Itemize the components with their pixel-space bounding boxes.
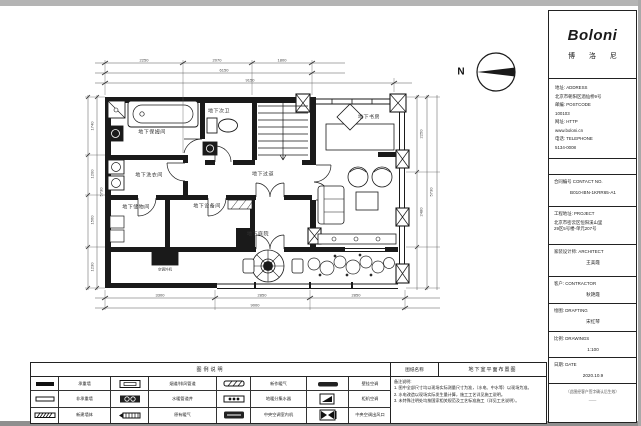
room-label-study: 地下书房	[358, 114, 380, 121]
drawing-name-value: 地下室平面布置图	[439, 363, 546, 376]
legend-header: 图例说明	[31, 363, 390, 377]
stamp-area: （此图经客户签字确认后生效） ——	[549, 384, 636, 422]
dim-right-1: 2250	[419, 130, 424, 139]
date: 日期: DATE 2020.10.9	[549, 358, 636, 384]
bottom-strip: 图例说明 承重墙 烟道/排风管道 新作暖气 壁挂空调 非承重墙	[30, 362, 547, 424]
dim-bottom-1: 3300	[156, 293, 165, 298]
room-label-bath: 地下保姆间	[138, 129, 166, 136]
fixtures	[108, 101, 252, 265]
legend-table: 图例说明 承重墙 烟道/排风管道 新作暖气 壁挂空调 非承重墙	[31, 363, 391, 423]
flue-duct-icon	[111, 377, 149, 391]
legend-label: 新建墙体	[59, 408, 111, 423]
drafting: 绘图: DRAFTING 宋红琴	[549, 304, 636, 332]
architect: 家装设计师: ARCHITECT 王美霞	[549, 245, 636, 277]
address-line: 5134-0008	[555, 144, 631, 153]
dim-top-3: 1800	[278, 58, 287, 63]
dim-top-mid: 6150	[220, 68, 229, 73]
company-logo: Boloni 博 洛 尼	[549, 11, 636, 79]
equipment-box	[228, 200, 252, 209]
title-block: Boloni 博 洛 尼 地址: ADDRESS 北京市朝阳区酒仙桥9号 邮编:…	[548, 10, 637, 423]
address-line: 网址: HTTP	[555, 118, 631, 127]
toilet	[207, 118, 238, 133]
tv-cabinet	[318, 234, 396, 244]
dim-right-total: 5730	[429, 188, 434, 197]
dim-left-1: 1740	[90, 122, 95, 131]
legend-label: 中央空调室内机	[251, 408, 307, 423]
central-ac-outlet-icon	[307, 408, 349, 423]
coffee-table	[356, 192, 378, 210]
load-bearing-wall-icon	[31, 377, 59, 391]
room-label-laundry: 地下洗衣间	[135, 172, 163, 179]
cabinet-ac-icon	[307, 391, 349, 407]
north-arrow-icon	[477, 53, 515, 91]
project-address: 工程地址: PROJECT 北京市密云区恒阳溪山里 29区5号楼-单元207号	[549, 207, 636, 245]
ac-outdoor-unit	[152, 252, 178, 265]
legend-label: 新作暖气	[251, 377, 307, 391]
dim-bottom-total: 9000	[251, 303, 260, 308]
note-item: 3. 未特殊注明处均按国家相关规范及工艺标准施工（详见工艺说明）。	[394, 398, 543, 404]
drawing-name-row: 图纸名称 地下室平面布置图	[391, 363, 546, 377]
address-line: 地址: ADDRESS	[555, 84, 631, 93]
room-label-courtyard: 地下庭院	[247, 231, 269, 238]
patio-chair	[292, 259, 303, 273]
contractor: 客户: CONTRACTOR 秋艳霞	[549, 277, 636, 304]
armchairs	[348, 167, 392, 187]
dim-bottom-2: 2850	[258, 293, 267, 298]
dim-top-2: 2070	[213, 58, 222, 63]
room-label-equipment: 地下设备间	[193, 203, 221, 210]
patio-umbrella	[252, 250, 284, 282]
existing-radiator-icon	[111, 408, 149, 423]
legend-label: 非承重墙	[59, 391, 111, 407]
legend-label: 水暖管道井	[149, 391, 217, 407]
legend-label: 原有暖气	[149, 408, 217, 423]
notes: 备注说明: 1. 图中全部尺寸均以现场实际测量尺寸为准，（水电、中水等）以现场为…	[391, 377, 546, 406]
planting-bed	[308, 254, 395, 276]
dim-left-4: 1230	[90, 263, 95, 272]
patio-chair	[243, 259, 254, 273]
address-line: www.boloni.cn	[555, 127, 631, 136]
furniture	[318, 104, 396, 244]
wall-ac-icon	[307, 377, 349, 391]
courtyard-items	[243, 250, 395, 282]
washbasin	[108, 126, 123, 141]
legend-label: 壁挂空调	[349, 377, 391, 391]
legend-label: 承重墙	[59, 377, 111, 391]
logo-chinese: 博 洛 尼	[549, 51, 636, 61]
pipe-shaft-icon	[111, 391, 149, 407]
legend-label: 地暖分集水器	[251, 391, 307, 407]
central-ac-indoor-unit-icon	[217, 408, 251, 423]
dim-left-total: 5730	[99, 188, 104, 197]
room-label-wc: 地下次卫	[208, 108, 230, 115]
wc-basin	[203, 142, 217, 155]
title-block-spacer	[549, 159, 636, 175]
legend-label: 中央空调出风口	[349, 408, 391, 423]
room-label-corridor: 地下过道	[252, 171, 274, 178]
company-address: 地址: ADDRESS 北京市朝阳区酒仙桥9号 邮编: POSTCODE 100…	[549, 79, 636, 159]
drawing-name-and-notes: 图纸名称 地下室平面布置图 备注说明: 1. 图中全部尺寸均以现场实际测量尺寸为…	[391, 363, 546, 423]
dim-top-1: 2250	[140, 58, 149, 63]
note-item: 1. 图中全部尺寸均以现场实际测量尺寸为准，（水电、中水等）以现场为准。	[394, 385, 543, 391]
address-line: 电话: TELEPHONE	[555, 135, 631, 144]
logo-text: Boloni	[549, 27, 636, 44]
floor-heating-manifold-icon	[217, 391, 251, 407]
legend-label: 烟道/排风管道	[149, 377, 217, 391]
dim-top-total: 9150	[246, 78, 255, 83]
non-bearing-wall-icon	[31, 391, 59, 407]
label-ac-outdoor: 空调外机	[158, 268, 172, 273]
bathtub	[128, 101, 198, 127]
study-desk	[326, 104, 394, 150]
dim-left-3: 1560	[90, 216, 95, 225]
legend-row: 新建墙体 原有暖气 中央空调室内机 中央空调出风口	[31, 408, 390, 423]
new-radiator-icon	[217, 377, 251, 391]
address-line: 北京市朝阳区酒仙桥9号	[555, 93, 631, 102]
sofa	[318, 186, 344, 224]
legend-row: 承重墙 烟道/排风管道 新作暖气 壁挂空调	[31, 377, 390, 391]
dim-left-2: 1200	[90, 170, 95, 179]
legend-label: 柜机空调	[349, 391, 391, 407]
new-built-wall-icon	[31, 408, 59, 423]
contract-number: 合同编号 CONTACT NO. B010-IBN-1KRR65-A1	[549, 175, 636, 207]
room-label-storage: 地下储物间	[122, 204, 150, 211]
north-letter: N	[457, 67, 464, 78]
legend-row: 非承重墙 水暖管道井 地暖分集水器 柜机空调	[31, 391, 390, 407]
shower	[108, 101, 125, 118]
drawing-name-label: 图纸名称	[391, 363, 439, 376]
address-line: 邮编: POSTCODE	[555, 101, 631, 110]
dim-bottom-3: 2850	[352, 293, 361, 298]
dim-right-2: 2480	[419, 208, 424, 217]
scale: 比例: DRAWINGS 1:100	[549, 332, 636, 358]
address-line: 100103	[555, 110, 631, 119]
